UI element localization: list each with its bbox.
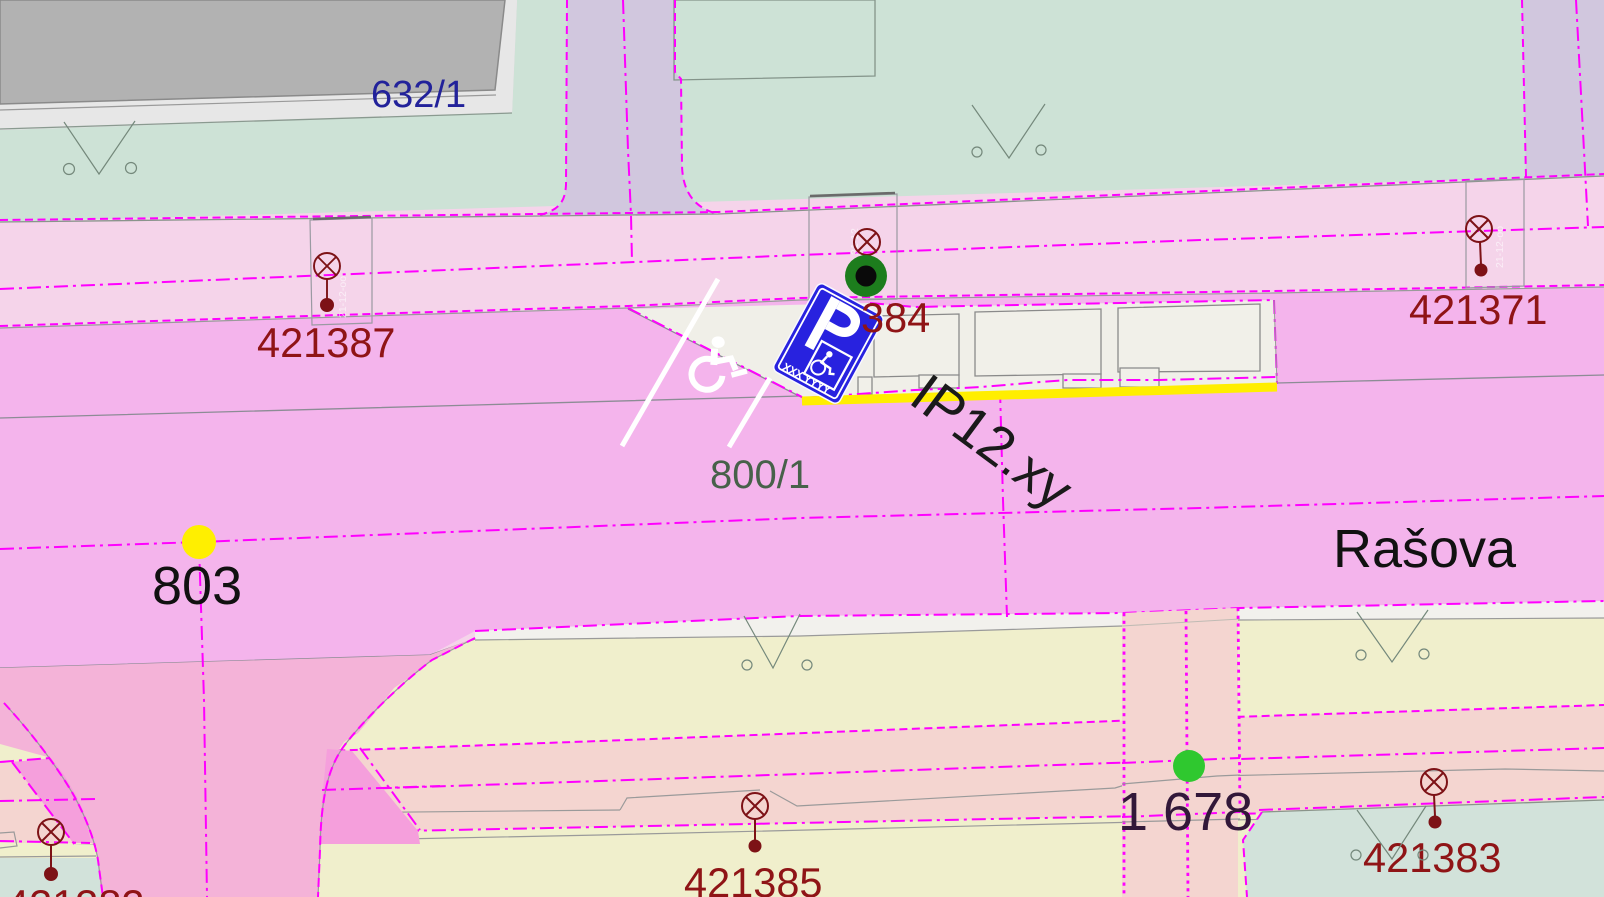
svg-text:421382: 421382 <box>6 881 144 897</box>
svg-text:21-12-oo: 21-12-oo <box>337 276 349 318</box>
svg-text:1 678: 1 678 <box>1118 782 1253 842</box>
svg-text:800/1: 800/1 <box>710 453 810 497</box>
svg-text:632/1: 632/1 <box>371 74 466 116</box>
svg-text:803: 803 <box>152 556 242 616</box>
svg-text:421371: 421371 <box>1409 286 1547 333</box>
svg-text:Rašova: Rašova <box>1333 519 1517 579</box>
svg-text:421383: 421383 <box>1363 834 1501 881</box>
svg-text:21-12-oo: 21-12-oo <box>1494 226 1506 268</box>
svg-text:421387: 421387 <box>257 319 395 366</box>
svg-text:384: 384 <box>861 294 930 341</box>
svg-text:421385: 421385 <box>684 859 822 897</box>
